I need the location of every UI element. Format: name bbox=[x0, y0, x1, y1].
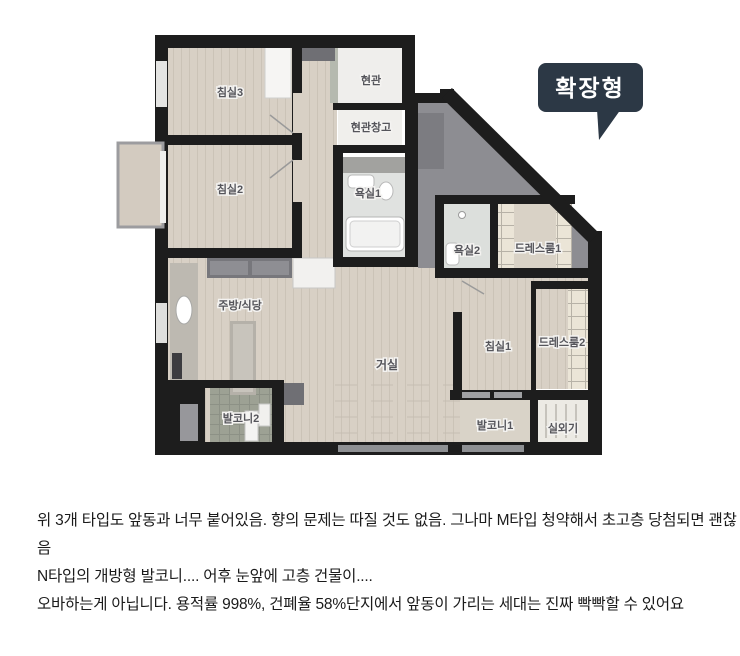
balcony2-shelf bbox=[259, 404, 270, 426]
bathroom2-shower bbox=[459, 212, 466, 219]
kitchen-stove bbox=[172, 353, 182, 379]
bedroom2-door-gap bbox=[293, 160, 302, 202]
room-label-outdoor-unit: 실외기 bbox=[548, 421, 578, 435]
room-label-dressroom1: 드레스룸1 bbox=[515, 241, 562, 255]
room-label-bathroom2: 욕실2 bbox=[454, 243, 480, 257]
room-label-bathroom1: 욕실1 bbox=[355, 186, 381, 200]
comment-line-4: 오바하는게 아닙니다. 용적률 998%, 건폐율 58%단지에서 앞동이 가리… bbox=[37, 591, 737, 619]
bedroom1-door-gap bbox=[453, 278, 462, 312]
room-label-kitchen: 주방/식당 bbox=[218, 298, 262, 312]
comment-line-2: 음 bbox=[37, 535, 737, 563]
dressroom1-closet-left bbox=[498, 204, 514, 268]
room-label-living: 거실 bbox=[376, 357, 398, 372]
comment-text: 위 3개 타입도 앞동과 너무 붙어있음. 향의 문제는 따질 것도 없음. 그… bbox=[37, 507, 737, 619]
badge-label: 확장형 bbox=[555, 75, 624, 101]
floorplan-image: 침실3 침실2 현관 현관창고 욕실1 욕실2 드레스룸1 주방/식당 거실 침… bbox=[110, 5, 670, 475]
bedroom1-floor bbox=[462, 278, 531, 390]
side-balcony-frame bbox=[118, 143, 163, 227]
comment-line-1: 위 3개 타입도 앞동과 너무 붙어있음. 향의 문제는 따질 것도 없음. 그… bbox=[37, 507, 737, 535]
bedroom2-floor bbox=[168, 145, 292, 248]
room-label-bedroom1: 침실1 bbox=[485, 339, 511, 353]
kitchen-pantry-b bbox=[252, 261, 289, 275]
comment-line-3: N타입의 개방형 발코니.... 어후 눈앞에 고층 건물이.... bbox=[37, 563, 737, 591]
room-label-bedroom3: 침실3 bbox=[217, 85, 243, 99]
bathroom1-sink bbox=[348, 175, 374, 188]
bedroom3-door-gap bbox=[293, 93, 302, 133]
side-balcony-window bbox=[160, 151, 166, 223]
kitchen-pantry-a bbox=[210, 261, 248, 275]
floorplan-svg: 침실3 침실2 현관 현관창고 욕실1 욕실2 드레스룸1 주방/식당 거실 침… bbox=[110, 5, 670, 475]
badge-tail bbox=[597, 109, 621, 140]
room-label-bedroom2: 침실2 bbox=[217, 182, 243, 196]
living-left-gray-block bbox=[284, 383, 304, 405]
room-label-entrance-storage: 현관창고 bbox=[351, 120, 391, 134]
bathroom1-counter bbox=[343, 157, 405, 173]
bedroom3-closet bbox=[265, 42, 291, 98]
dressroom2-closet bbox=[568, 281, 588, 389]
bathroom1-tub-inner bbox=[350, 221, 400, 247]
room-label-balcony2: 발코니2 bbox=[223, 411, 259, 425]
room-label-entrance: 현관 bbox=[361, 73, 381, 87]
room-label-dressroom2: 드레스룸2 bbox=[539, 335, 586, 349]
extended-type-badge: 확장형 bbox=[538, 63, 643, 140]
blog-post: 침실3 침실2 현관 현관창고 욕실1 욕실2 드레스룸1 주방/식당 거실 침… bbox=[0, 0, 740, 656]
kitchen-sink bbox=[176, 296, 192, 324]
hall-end-closet bbox=[293, 258, 335, 288]
room-label-balcony1: 발코니1 bbox=[477, 418, 513, 432]
gray-zone-dark bbox=[418, 113, 444, 169]
